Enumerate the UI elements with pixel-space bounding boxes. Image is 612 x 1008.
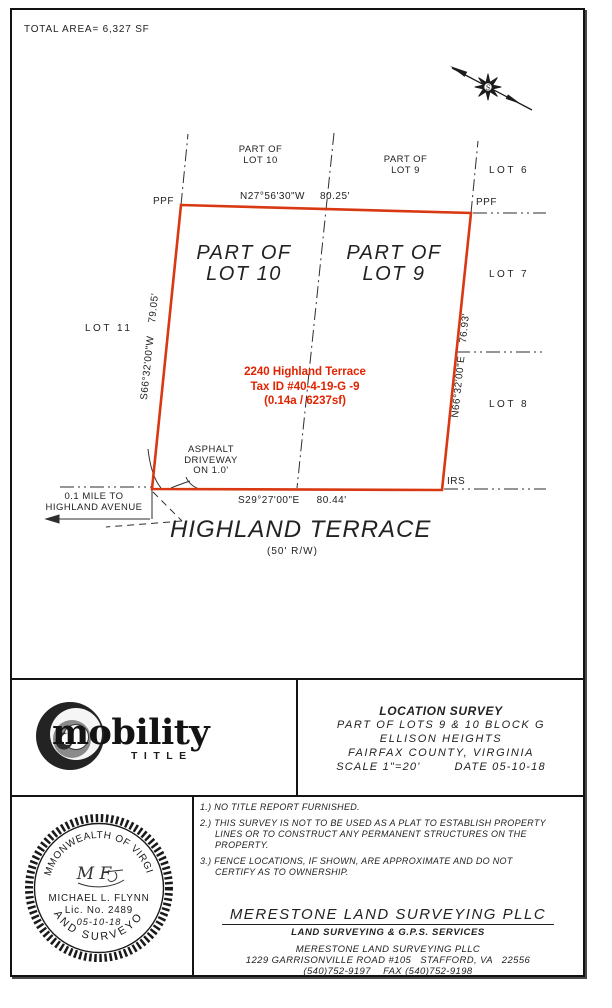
driveway-note-line1: ASPHALT (168, 445, 254, 456)
distance-to-highland-avenue-note: 0.1 MILE TO HIGHLAND AVENUE (38, 492, 150, 513)
company-heading: MERESTONE LAND SURVEYING PLLC (222, 906, 554, 925)
ppf-marker-right: PPF (476, 197, 497, 208)
north-arrow-icon: S (450, 66, 532, 110)
driveway-leader-line (171, 481, 190, 488)
boundary-extension-left (181, 134, 188, 205)
north-arrow-glyph: S (486, 84, 491, 92)
seal-surveyor-name: MICHAEL L. FLYNN (49, 893, 150, 904)
driveway-flare-right (186, 477, 199, 489)
ppf-marker-left: PPF (153, 196, 174, 207)
part-of-lot10-upper-label: PART OF LOT 10 (213, 145, 308, 166)
street-right-of-way-label: (50' R/W) (230, 546, 355, 557)
bearing-bottom-distance: 80.44' (317, 495, 347, 506)
part-of-lot10-upper-line2: LOT 10 (213, 156, 308, 167)
survey-scale-date: SCALE 1"=20' DATE 05-10-18 (299, 760, 583, 774)
surveyor-seal: COMMONWEALTH OF VIRGINIA LAND SURVEYOR M… (20, 809, 178, 967)
part-of-lot9-main-label: PART OF LOT 9 (328, 243, 460, 284)
asphalt-driveway-note: ASPHALT DRIVEWAY ON 1.0' (168, 445, 254, 477)
north-arrow-head (450, 66, 467, 77)
mile-note-line1: 0.1 MILE TO (38, 492, 150, 503)
address-line1: 2240 Highland Terrace (210, 365, 400, 380)
survey-date: DATE 05-10-18 (455, 760, 546, 774)
divider-logo-title (296, 678, 298, 797)
survey-notes: 1.) NO TITLE REPORT FURNISHED. 2.) THIS … (200, 802, 552, 883)
part-of-lot10-main-label: PART OF LOT 10 (178, 243, 310, 284)
total-area-label: TOTAL AREA= 6,327 SF (24, 24, 150, 35)
survey-title: LOCATION SURVEY (299, 704, 583, 718)
surveying-company-block: MERESTONE LAND SURVEYING PLLC LAND SURVE… (193, 906, 583, 977)
lot6-label: LOT 6 (489, 165, 529, 176)
mobility-wordmark: mobility (52, 712, 209, 753)
part-of-lot9-upper-line1: PART OF (358, 155, 453, 166)
note-1: 1.) NO TITLE REPORT FURNISHED. (200, 802, 552, 813)
survey-scale: SCALE 1"=20' (336, 760, 420, 774)
survey-subdivision: ELLISON HEIGHTS (299, 732, 583, 746)
part-of-lot9-upper-label: PART OF LOT 9 (358, 155, 453, 176)
driveway-note-line3: ON 1.0' (168, 466, 254, 477)
part-of-lot10-upper-line1: PART OF (213, 145, 308, 156)
survey-plat-page: S TOTAL AREA= 6,327 SF PPF PPF IRS PART … (0, 0, 612, 1008)
bearing-bottom-value: S29°27'00"E (238, 495, 300, 506)
lot8-label: LOT 8 (489, 399, 529, 410)
bearing-top-value: N27°56'30"W (240, 191, 305, 202)
part-of-lot10-main-line2: LOT 10 (178, 264, 310, 285)
bearing-south-line: S29°27'00"E 80.44' (238, 495, 347, 506)
seal-signature: M F (76, 864, 113, 884)
company-services: LAND SURVEYING & G.P.S. SERVICES (193, 927, 583, 938)
company-phone-fax: (540)752-9197 FAX (540)752-9198 (193, 966, 583, 977)
title-block: LOCATION SURVEY PART OF LOTS 9 & 10 BLOC… (299, 704, 583, 774)
address-area: (0.14a / 6237sf) (210, 394, 400, 409)
note-2: 2.) THIS SURVEY IS NOT TO BE USED AS A P… (200, 818, 552, 851)
lot7-label: LOT 7 (489, 269, 529, 280)
bearing-north-line: N27°56'30"W 80.25' (240, 191, 350, 202)
part-of-lot9-main-line1: PART OF (328, 243, 460, 264)
property-address-annotation: 2240 Highland Terrace Tax ID #40-4-19-G … (210, 365, 400, 409)
mile-note-line2: HIGHLAND AVENUE (38, 503, 150, 514)
company-name: MERESTONE LAND SURVEYING PLLC (193, 944, 583, 955)
part-of-lot9-upper-line2: LOT 9 (358, 166, 453, 177)
irs-marker: IRS (447, 476, 465, 487)
note-3: 3.) FENCE LOCATIONS, IF SHOWN, ARE APPRO… (200, 856, 552, 878)
part-of-lot10-main-line1: PART OF (178, 243, 310, 264)
seal-date: 05-10-18 (77, 917, 122, 927)
street-name-label: HIGHLAND TERRACE (170, 516, 415, 544)
address-tax-id: Tax ID #40-4-19-G -9 (210, 380, 400, 395)
lot11-label: LOT 11 (85, 323, 132, 334)
survey-subject: PART OF LOTS 9 & 10 BLOCK G (299, 718, 583, 732)
survey-county: FAIRFAX COUNTY, VIRGINIA (299, 746, 583, 760)
north-arrow-mid-barb (506, 94, 521, 104)
seal-license-number: Lic. No. 2489 (65, 905, 133, 916)
mobility-title-subtext: TITLE (131, 750, 193, 762)
part-of-lot9-main-line2: LOT 9 (328, 264, 460, 285)
lot-center-line (297, 133, 334, 488)
company-address: 1229 GARRISONVILLE ROAD #105 STAFFORD, V… (193, 955, 583, 966)
mile-arrow-head-icon (46, 515, 59, 523)
bearing-top-distance: 80.25' (320, 191, 350, 202)
